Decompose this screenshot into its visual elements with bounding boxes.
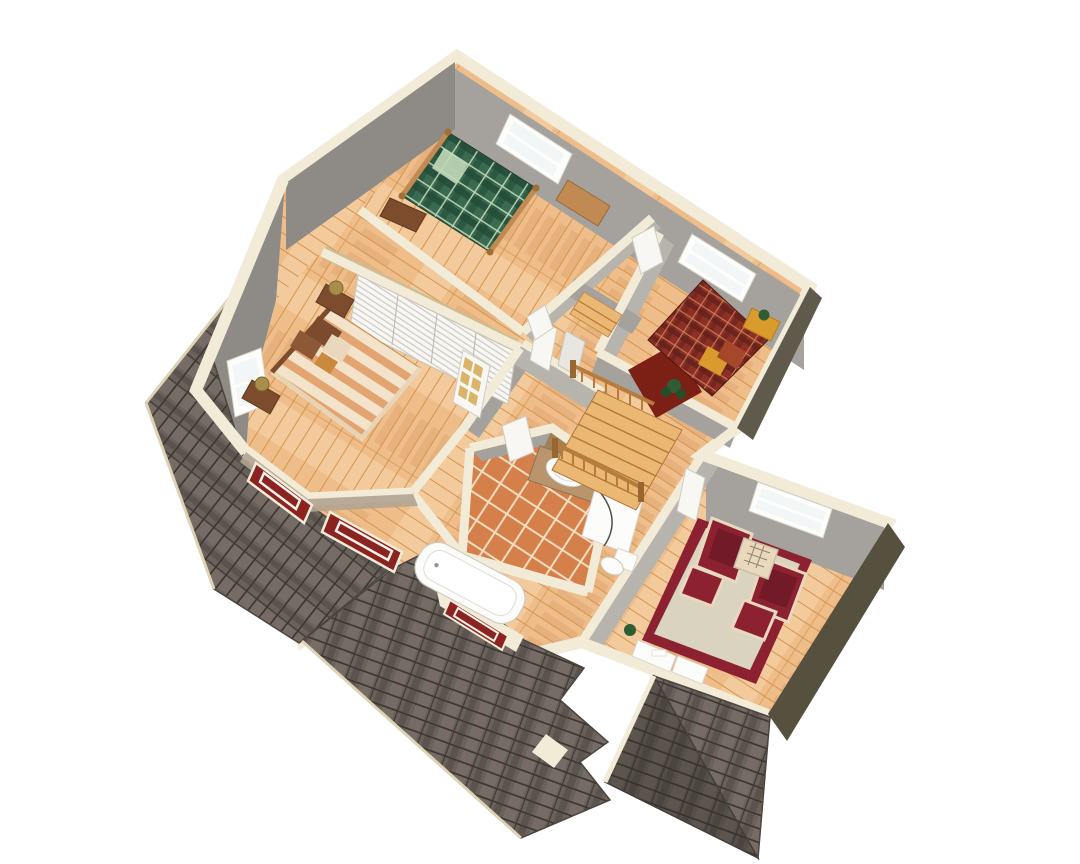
shelf-plant <box>624 624 636 636</box>
floorplan-render <box>0 0 1080 864</box>
floorplan-svg <box>0 0 1080 864</box>
